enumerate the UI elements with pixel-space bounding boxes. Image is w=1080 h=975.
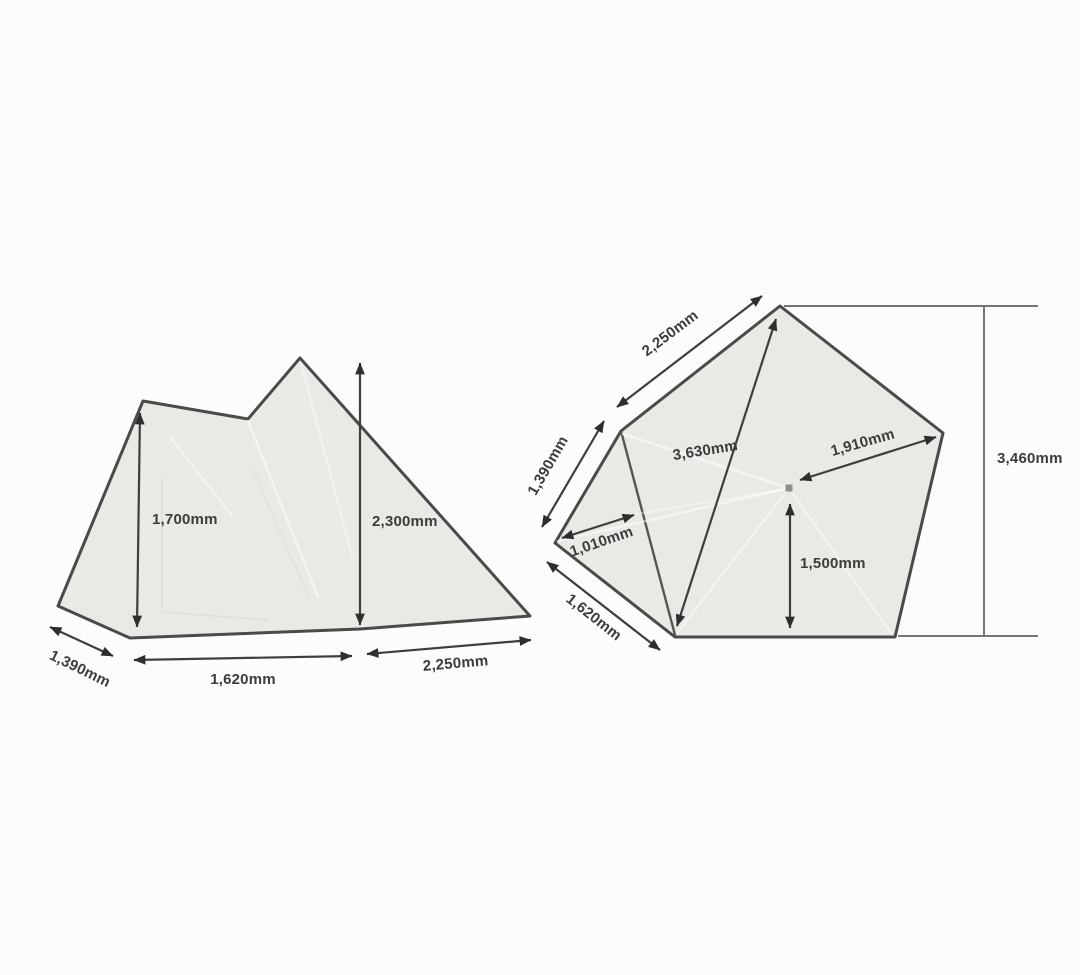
dimension-width-rear: 2,250mm (367, 640, 531, 675)
dimension-label-width-rear: 2,250mm (422, 652, 489, 675)
dimension-label-edge-top-left: 2,250mm (639, 307, 702, 360)
dimension-label-width-front: 1,390mm (47, 647, 113, 691)
dimension-label-height-peak: 2,300mm (372, 513, 438, 530)
floor-plan-figure: 3,630mm 1,910mm 1,010mm 1,500mm 2,250mm (524, 296, 1062, 650)
dimension-label-overall-width: 3,460mm (997, 450, 1063, 467)
dimension-line-width-rear (367, 640, 531, 654)
center-point-marker (786, 485, 793, 492)
dimension-label-width-floor: 1,620mm (210, 671, 276, 688)
dimension-width-floor: 1,620mm (134, 656, 352, 688)
screenshot-root: 1,700mm 2,300mm 1,390mm 1,620mm 2,250mm (0, 0, 1080, 975)
dimension-width-front: 1,390mm (47, 627, 113, 691)
floor-plan-outline (555, 306, 943, 637)
dimension-label-center-to-bottom: 1,500mm (800, 555, 866, 572)
dimension-label-height-inner: 1,700mm (152, 511, 218, 528)
side-view-figure: 1,700mm 2,300mm 1,390mm 1,620mm 2,250mm (47, 358, 531, 691)
tent-dimension-diagram: 1,700mm 2,300mm 1,390mm 1,620mm 2,250mm (0, 0, 1080, 975)
side-view-outline (58, 358, 530, 638)
dimension-line-width-floor (134, 656, 352, 660)
